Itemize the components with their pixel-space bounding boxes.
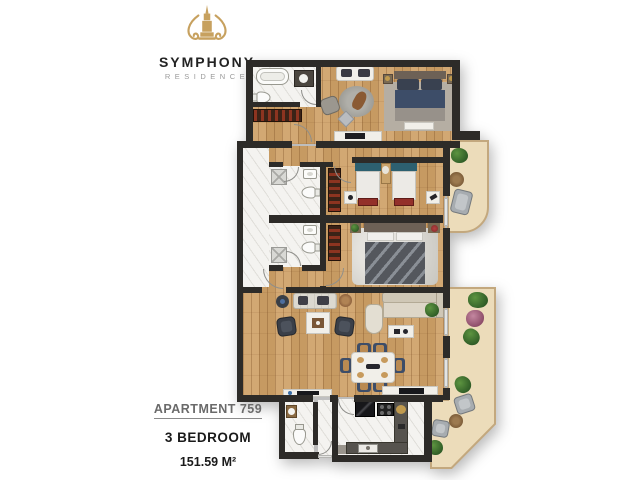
wall bbox=[452, 131, 480, 140]
gold-basket bbox=[396, 405, 406, 414]
apartment-title: APARTMENT 759 bbox=[154, 402, 262, 419]
wall bbox=[237, 141, 243, 293]
kitchen-mat bbox=[338, 445, 346, 454]
balcony-plant bbox=[468, 292, 488, 308]
coffee-table-2 bbox=[388, 325, 414, 338]
wall bbox=[320, 162, 326, 215]
wall bbox=[443, 388, 450, 400]
table-centerpiece bbox=[366, 364, 380, 369]
sofa-cushion bbox=[298, 296, 308, 305]
master-bed-headboard bbox=[394, 71, 446, 79]
wall bbox=[269, 162, 283, 167]
stove-burner bbox=[387, 411, 391, 415]
round-side-table bbox=[339, 294, 352, 307]
settee-cushion bbox=[341, 69, 352, 77]
fridge bbox=[355, 400, 375, 417]
nightstand-plant bbox=[351, 224, 359, 232]
bed3-pillow bbox=[367, 232, 394, 241]
twin-bench bbox=[394, 198, 414, 206]
wall bbox=[352, 157, 443, 163]
wall bbox=[320, 223, 326, 270]
living-window bbox=[444, 309, 448, 335]
apartment-area: 151.59 M² bbox=[138, 455, 278, 469]
twin-headboard bbox=[391, 162, 417, 171]
living-window bbox=[444, 359, 448, 387]
side-table-decor bbox=[348, 195, 353, 200]
wall bbox=[300, 162, 333, 167]
wall bbox=[452, 60, 460, 138]
dresser-tv bbox=[345, 133, 365, 139]
nightstand-plant bbox=[382, 166, 389, 174]
plate bbox=[381, 372, 388, 378]
wall bbox=[332, 395, 338, 457]
wall bbox=[313, 402, 318, 445]
twin-bed bbox=[356, 171, 380, 200]
wall bbox=[332, 455, 432, 462]
balcony-plant bbox=[451, 148, 468, 163]
bath-vanity-basin bbox=[299, 74, 308, 83]
plate bbox=[357, 372, 364, 378]
sink-faucet bbox=[366, 446, 370, 450]
stove-burner bbox=[387, 405, 391, 409]
bed-bench bbox=[404, 122, 434, 130]
sofa-cushion bbox=[317, 296, 329, 305]
wall bbox=[443, 336, 450, 358]
entry-threshold bbox=[318, 455, 332, 458]
wall bbox=[237, 287, 243, 402]
bed-pillow bbox=[421, 79, 442, 90]
bed3-headboard bbox=[364, 223, 426, 232]
nightstand-lamp bbox=[385, 76, 390, 81]
wall bbox=[443, 228, 450, 293]
coffee-table-dot bbox=[316, 321, 320, 325]
stove-burner bbox=[380, 405, 384, 409]
balcony-rug bbox=[449, 172, 464, 187]
balcony-door-window bbox=[444, 198, 448, 226]
wall bbox=[246, 60, 253, 148]
wall bbox=[424, 395, 432, 457]
stove-burner bbox=[380, 411, 384, 415]
wall bbox=[443, 148, 450, 196]
chaise bbox=[365, 304, 383, 334]
toilet1 bbox=[302, 187, 317, 199]
plate bbox=[381, 357, 388, 363]
bed3-duvet bbox=[365, 242, 425, 284]
wall bbox=[269, 215, 443, 223]
wall bbox=[286, 287, 450, 293]
bed3-pillow bbox=[396, 232, 423, 241]
wall bbox=[253, 102, 300, 107]
floor-plan-page: SYMPHONY RESIDENCE bbox=[0, 0, 640, 480]
indoor-plant bbox=[425, 303, 439, 317]
wall bbox=[246, 60, 460, 67]
bed-pillow bbox=[397, 79, 419, 90]
apartment-info: APARTMENT 759 3 BEDROOM 151.59 M² bbox=[138, 400, 278, 469]
master-bed-blanket bbox=[395, 108, 445, 121]
armchair bbox=[334, 316, 355, 337]
toilet2 bbox=[302, 242, 317, 254]
table-decor bbox=[394, 329, 400, 334]
apartment-bedrooms: 3 BEDROOM bbox=[138, 430, 278, 445]
sink2 bbox=[303, 225, 317, 235]
twin-bed bbox=[392, 171, 416, 200]
table-decor bbox=[403, 329, 408, 334]
armchair bbox=[276, 316, 297, 337]
floor-plan bbox=[0, 0, 640, 480]
wall bbox=[279, 400, 285, 458]
side-corridor-floor bbox=[243, 148, 269, 287]
plate bbox=[357, 357, 364, 363]
walk-in-closet bbox=[253, 109, 302, 122]
sideboard-decor bbox=[399, 388, 424, 394]
counter-item bbox=[398, 424, 405, 429]
wall bbox=[316, 141, 460, 148]
wc-sink-basin bbox=[288, 408, 295, 415]
balcony-rug bbox=[449, 414, 463, 428]
wardrobe-bedroom3 bbox=[328, 225, 341, 261]
settee-cushion bbox=[358, 69, 370, 77]
wall bbox=[316, 64, 321, 107]
sink1 bbox=[303, 169, 317, 179]
wall bbox=[443, 287, 450, 308]
bathtub bbox=[256, 68, 289, 85]
plant-pot-center bbox=[280, 299, 285, 304]
wall bbox=[279, 452, 319, 459]
twin-bench bbox=[358, 198, 378, 206]
twin-headboard bbox=[355, 162, 381, 171]
balcony-chair bbox=[431, 419, 451, 439]
flower-decor bbox=[431, 225, 438, 232]
shower2 bbox=[271, 247, 287, 263]
